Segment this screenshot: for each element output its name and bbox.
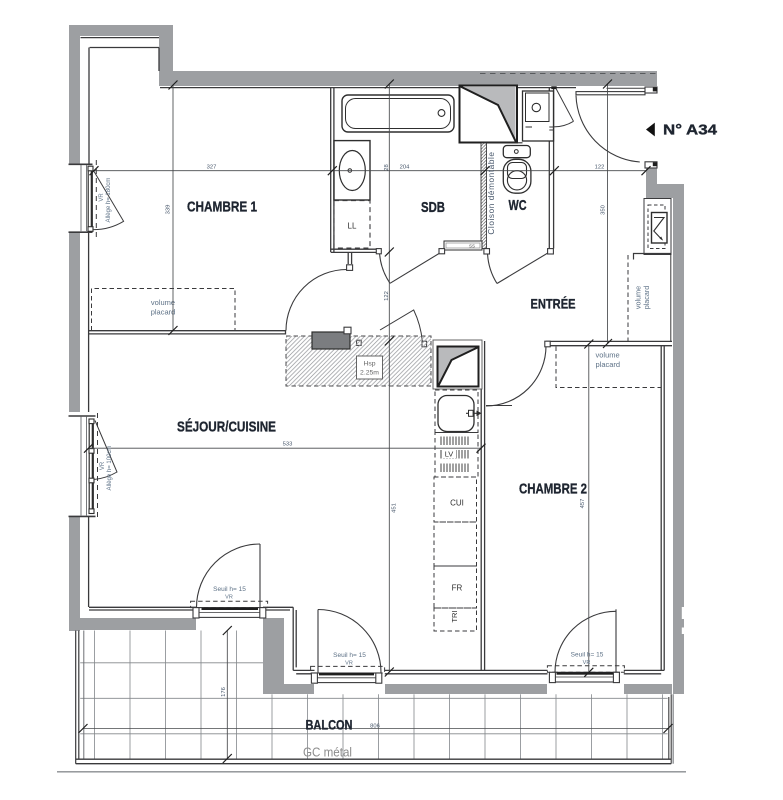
svg-text:350: 350 — [600, 205, 606, 215]
svg-text:Cloison démontable: Cloison démontable — [487, 151, 496, 234]
svg-text:VR: VR — [345, 661, 353, 667]
svg-text:CUI: CUI — [450, 499, 464, 508]
svg-text:volume: volume — [633, 286, 642, 309]
svg-text:FR: FR — [452, 584, 463, 593]
svg-text:Allège h= 100cm: Allège h= 100cm — [107, 446, 113, 491]
svg-text:806: 806 — [370, 724, 380, 730]
svg-text:SDB: SDB — [421, 199, 445, 216]
svg-text:Seuil h= 15: Seuil h= 15 — [333, 652, 366, 659]
svg-text:204: 204 — [400, 165, 410, 171]
svg-text:339: 339 — [166, 205, 172, 215]
svg-text:28: 28 — [384, 164, 390, 170]
svg-text:TRI: TRI — [450, 610, 459, 622]
svg-text:VR: VR — [583, 660, 591, 666]
svg-text:VR: VR — [225, 595, 233, 601]
svg-text:Allège h= 180cm: Allège h= 180cm — [106, 178, 112, 223]
svg-text:BALCON: BALCON — [306, 718, 353, 733]
svg-text:LV: LV — [445, 450, 454, 459]
svg-text:2.25m: 2.25m — [360, 370, 379, 377]
svg-text:VR: VR — [100, 461, 106, 470]
svg-text:451: 451 — [392, 503, 398, 513]
svg-text:ENTRÉE: ENTRÉE — [531, 296, 576, 311]
svg-text:placard: placard — [151, 308, 176, 317]
svg-text:volume: volume — [151, 298, 175, 307]
svg-text:WC: WC — [509, 197, 527, 214]
svg-text:SÉJOUR/CUISINE: SÉJOUR/CUISINE — [177, 419, 276, 436]
svg-text:Seuil h= 15: Seuil h= 15 — [213, 586, 246, 593]
svg-text:SS: SS — [469, 244, 475, 249]
svg-text:GC métal: GC métal — [303, 745, 352, 760]
svg-text:176: 176 — [221, 687, 227, 697]
svg-text:327: 327 — [207, 165, 217, 171]
svg-text:VR: VR — [99, 193, 105, 202]
svg-text:placard: placard — [596, 360, 621, 369]
svg-text:457: 457 — [580, 499, 586, 509]
svg-text:N° A34: N° A34 — [663, 123, 717, 139]
svg-text:Hsp: Hsp — [363, 361, 375, 368]
svg-text:LL: LL — [348, 222, 357, 231]
svg-text:Seuil h= 15: Seuil h= 15 — [571, 652, 604, 659]
svg-text:CHAMBRE 2: CHAMBRE 2 — [519, 480, 587, 497]
svg-text:122: 122 — [384, 291, 390, 301]
svg-text:CHAMBRE 1: CHAMBRE 1 — [187, 199, 257, 216]
svg-text:placard: placard — [642, 286, 651, 310]
svg-text:122: 122 — [595, 165, 605, 171]
svg-text:533: 533 — [283, 442, 293, 448]
svg-text:volume: volume — [596, 351, 620, 360]
